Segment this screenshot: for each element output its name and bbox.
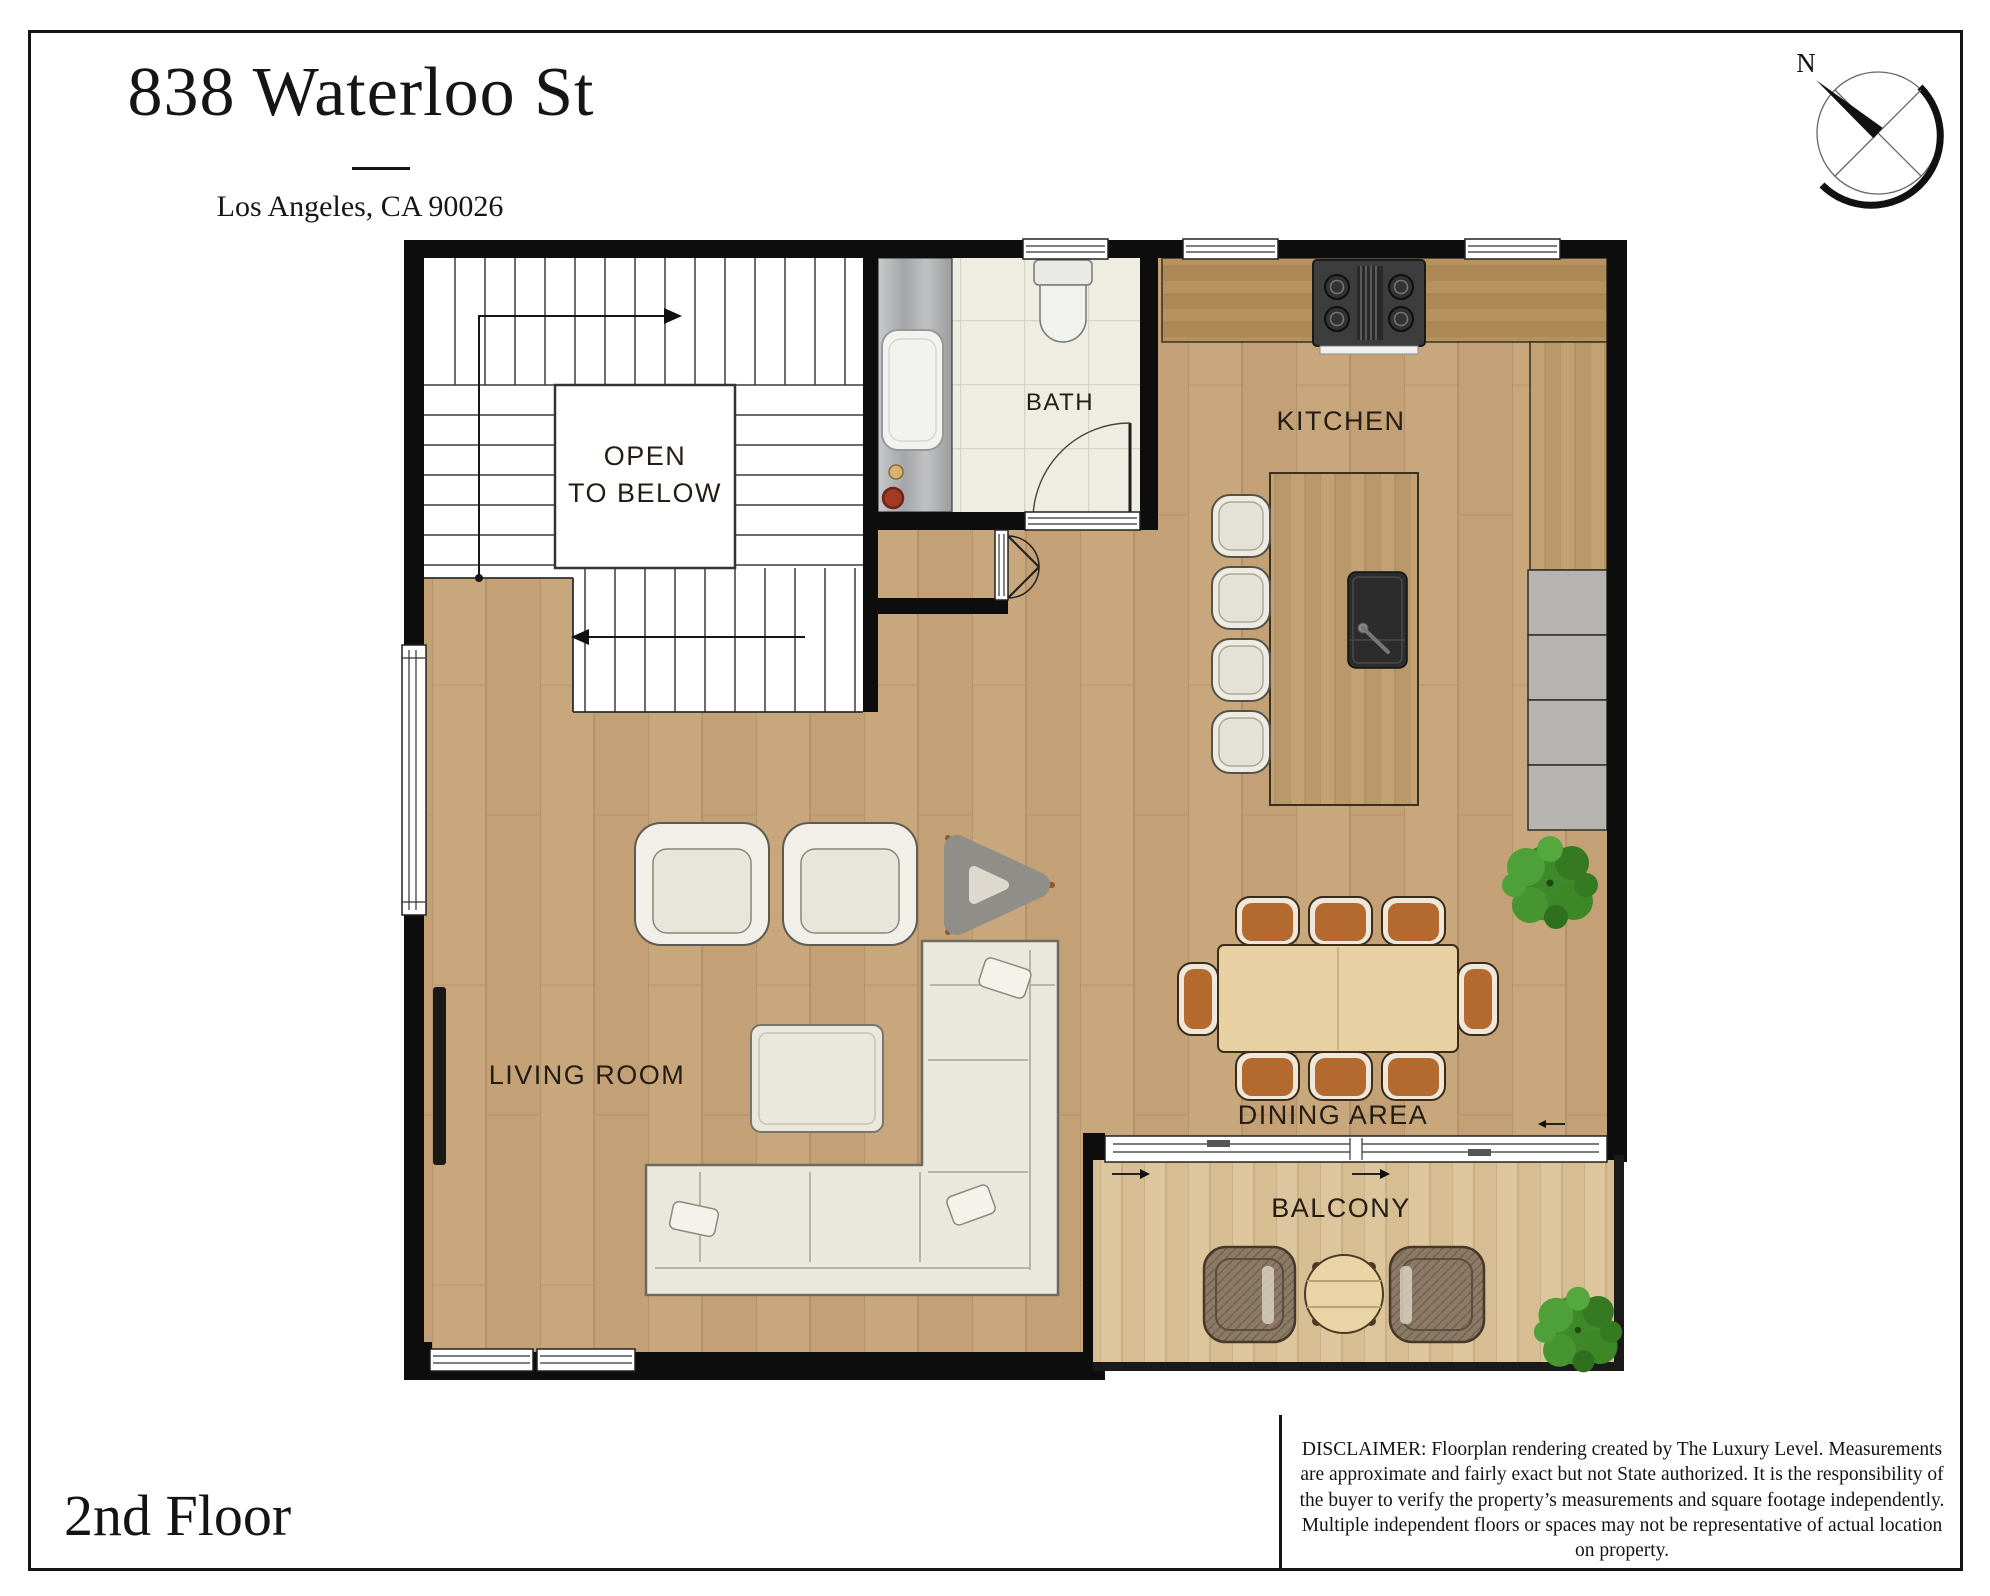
wall-stair-bath (863, 240, 878, 712)
ottoman (751, 1025, 883, 1132)
island-sink (1348, 572, 1407, 668)
wall-bath-kitchen (1140, 240, 1158, 530)
vanity-sink (882, 330, 943, 450)
wicker-chair-2 (1390, 1247, 1484, 1342)
wall-right (1607, 240, 1627, 1162)
toilet (1034, 260, 1092, 342)
open-to-below-box (555, 385, 735, 568)
compass-needle-icon (1816, 80, 1883, 138)
sliding-door (1105, 1136, 1607, 1162)
compass: N (1796, 48, 1940, 205)
concrete-counter-squares (1528, 570, 1607, 830)
open-to-below-label-1: OPEN (604, 441, 687, 471)
wall-door-cap (1083, 1133, 1105, 1163)
wall-top (404, 240, 1627, 258)
bathroom: BATH (878, 258, 1142, 518)
balcony-round-table (1305, 1255, 1383, 1333)
living-room-label: LIVING ROOM (489, 1060, 686, 1090)
floorplan-drawing: OPEN TO BELOW BATH (0, 0, 1990, 1596)
open-to-below-label-2: TO BELOW (568, 478, 722, 508)
wall-hall (878, 598, 1008, 614)
balcony-railing-bottom (1093, 1362, 1624, 1371)
vanity-accessory (889, 465, 903, 479)
floorplan-sheet: 838 Waterloo St Los Angeles, CA 90026 2n… (0, 0, 1990, 1596)
compass-thick-arc (1822, 87, 1940, 205)
wall-bath-bottom (878, 512, 1025, 530)
wicker-chair-1 (1204, 1247, 1295, 1342)
compass-north-label: N (1796, 48, 1816, 78)
bath-label: BATH (1026, 389, 1094, 416)
dining-area-label: DINING AREA (1238, 1100, 1429, 1130)
vanity-accessory-red (883, 488, 903, 508)
wall-balcony-divider (1083, 1160, 1093, 1362)
tv (433, 987, 446, 1165)
kitchen-counter-right (1530, 342, 1607, 570)
kitchen-island (1212, 473, 1418, 805)
balcony-label: BALCONY (1271, 1193, 1411, 1223)
balcony: BALCONY (1093, 1120, 1624, 1372)
armchair-2 (783, 823, 917, 945)
stove-cooktop (1313, 260, 1425, 354)
armchair-1 (635, 823, 769, 945)
kitchen-label: KITCHEN (1276, 406, 1405, 436)
